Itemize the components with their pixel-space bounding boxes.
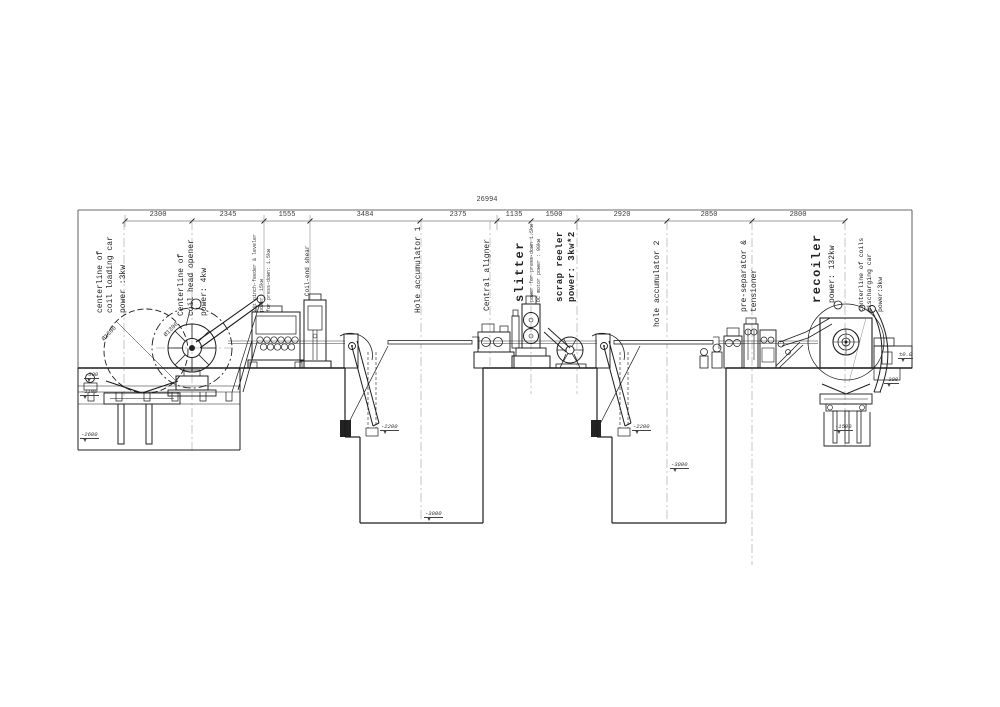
floor-level-marker: ±0.0 — [898, 352, 913, 362]
line-drawing — [0, 0, 1000, 707]
dimension-2300: 2300 — [136, 211, 180, 219]
elevation-marker: -1100 — [80, 389, 99, 399]
dimension-2800: 2800 — [776, 211, 820, 219]
pit1-step-depth: -2200 — [380, 424, 399, 434]
label-slitter: slitter power for press-down 1.5kw DC mo… — [513, 224, 543, 302]
strip-line — [228, 337, 818, 349]
accumulator1-drawing — [340, 333, 483, 523]
label-recoiler: recoiler power: 132kw — [810, 233, 838, 303]
label-coil-head-opener: Centerline of coil head opener power: 4k… — [177, 239, 210, 316]
dimension-2920: 2920 — [600, 211, 644, 219]
pre-separator-drawing — [700, 318, 803, 368]
label-discharging-car: centerline of coils discharging car powe… — [858, 238, 885, 312]
dimension-3484: 3484 — [343, 211, 387, 219]
accumulator2-drawing — [591, 333, 726, 523]
slitting-line-drawing-sheet: 26994 2300 2345 1555 3484 2375 1135 1500… — [0, 0, 1000, 707]
label-coil-loading-car: centerline of coil loading car power :3k… — [96, 236, 129, 313]
overall-dimension: 26994 — [462, 196, 512, 204]
elevation-marker: -2600 — [80, 432, 99, 442]
ground-and-foundation — [78, 368, 912, 450]
dimension-1135: 1135 — [492, 211, 536, 219]
label-hole-accumulator-2: hole accumulator 2 — [653, 241, 663, 327]
elevation-marker: -500 — [84, 372, 99, 382]
label-scrap-reeler: scrap reeler power: 3kw*2 — [555, 231, 578, 302]
dimension-2345: 2345 — [206, 211, 250, 219]
label-pre-separator: pre-separator & tensioner — [740, 240, 761, 312]
car-pit-depth: -1500 — [834, 424, 853, 434]
dimension-2850: 2850 — [687, 211, 731, 219]
dimension-2375: 2375 — [436, 211, 480, 219]
elevation-marker: -300 — [884, 377, 899, 387]
label-hole-accumulator-1: Hole accumulator 1 — [414, 227, 424, 313]
label-central-aligner: Central aligner — [483, 239, 493, 311]
coil-end-shear-drawing — [300, 294, 331, 368]
central-aligner-drawing — [474, 324, 514, 368]
dimension-1555: 1555 — [265, 211, 309, 219]
pit2-step-depth: -2200 — [632, 424, 651, 434]
label-pinch-feeder: 24t pinch-feeder & leveler power: 15kw f… — [252, 234, 273, 312]
pit1-bottom-depth: -3800 — [424, 511, 443, 521]
dimension-1500: 1500 — [532, 211, 576, 219]
pit2-bottom-depth: -3800 — [670, 462, 689, 472]
label-coil-end-shear: Coil-end shear — [304, 246, 312, 296]
